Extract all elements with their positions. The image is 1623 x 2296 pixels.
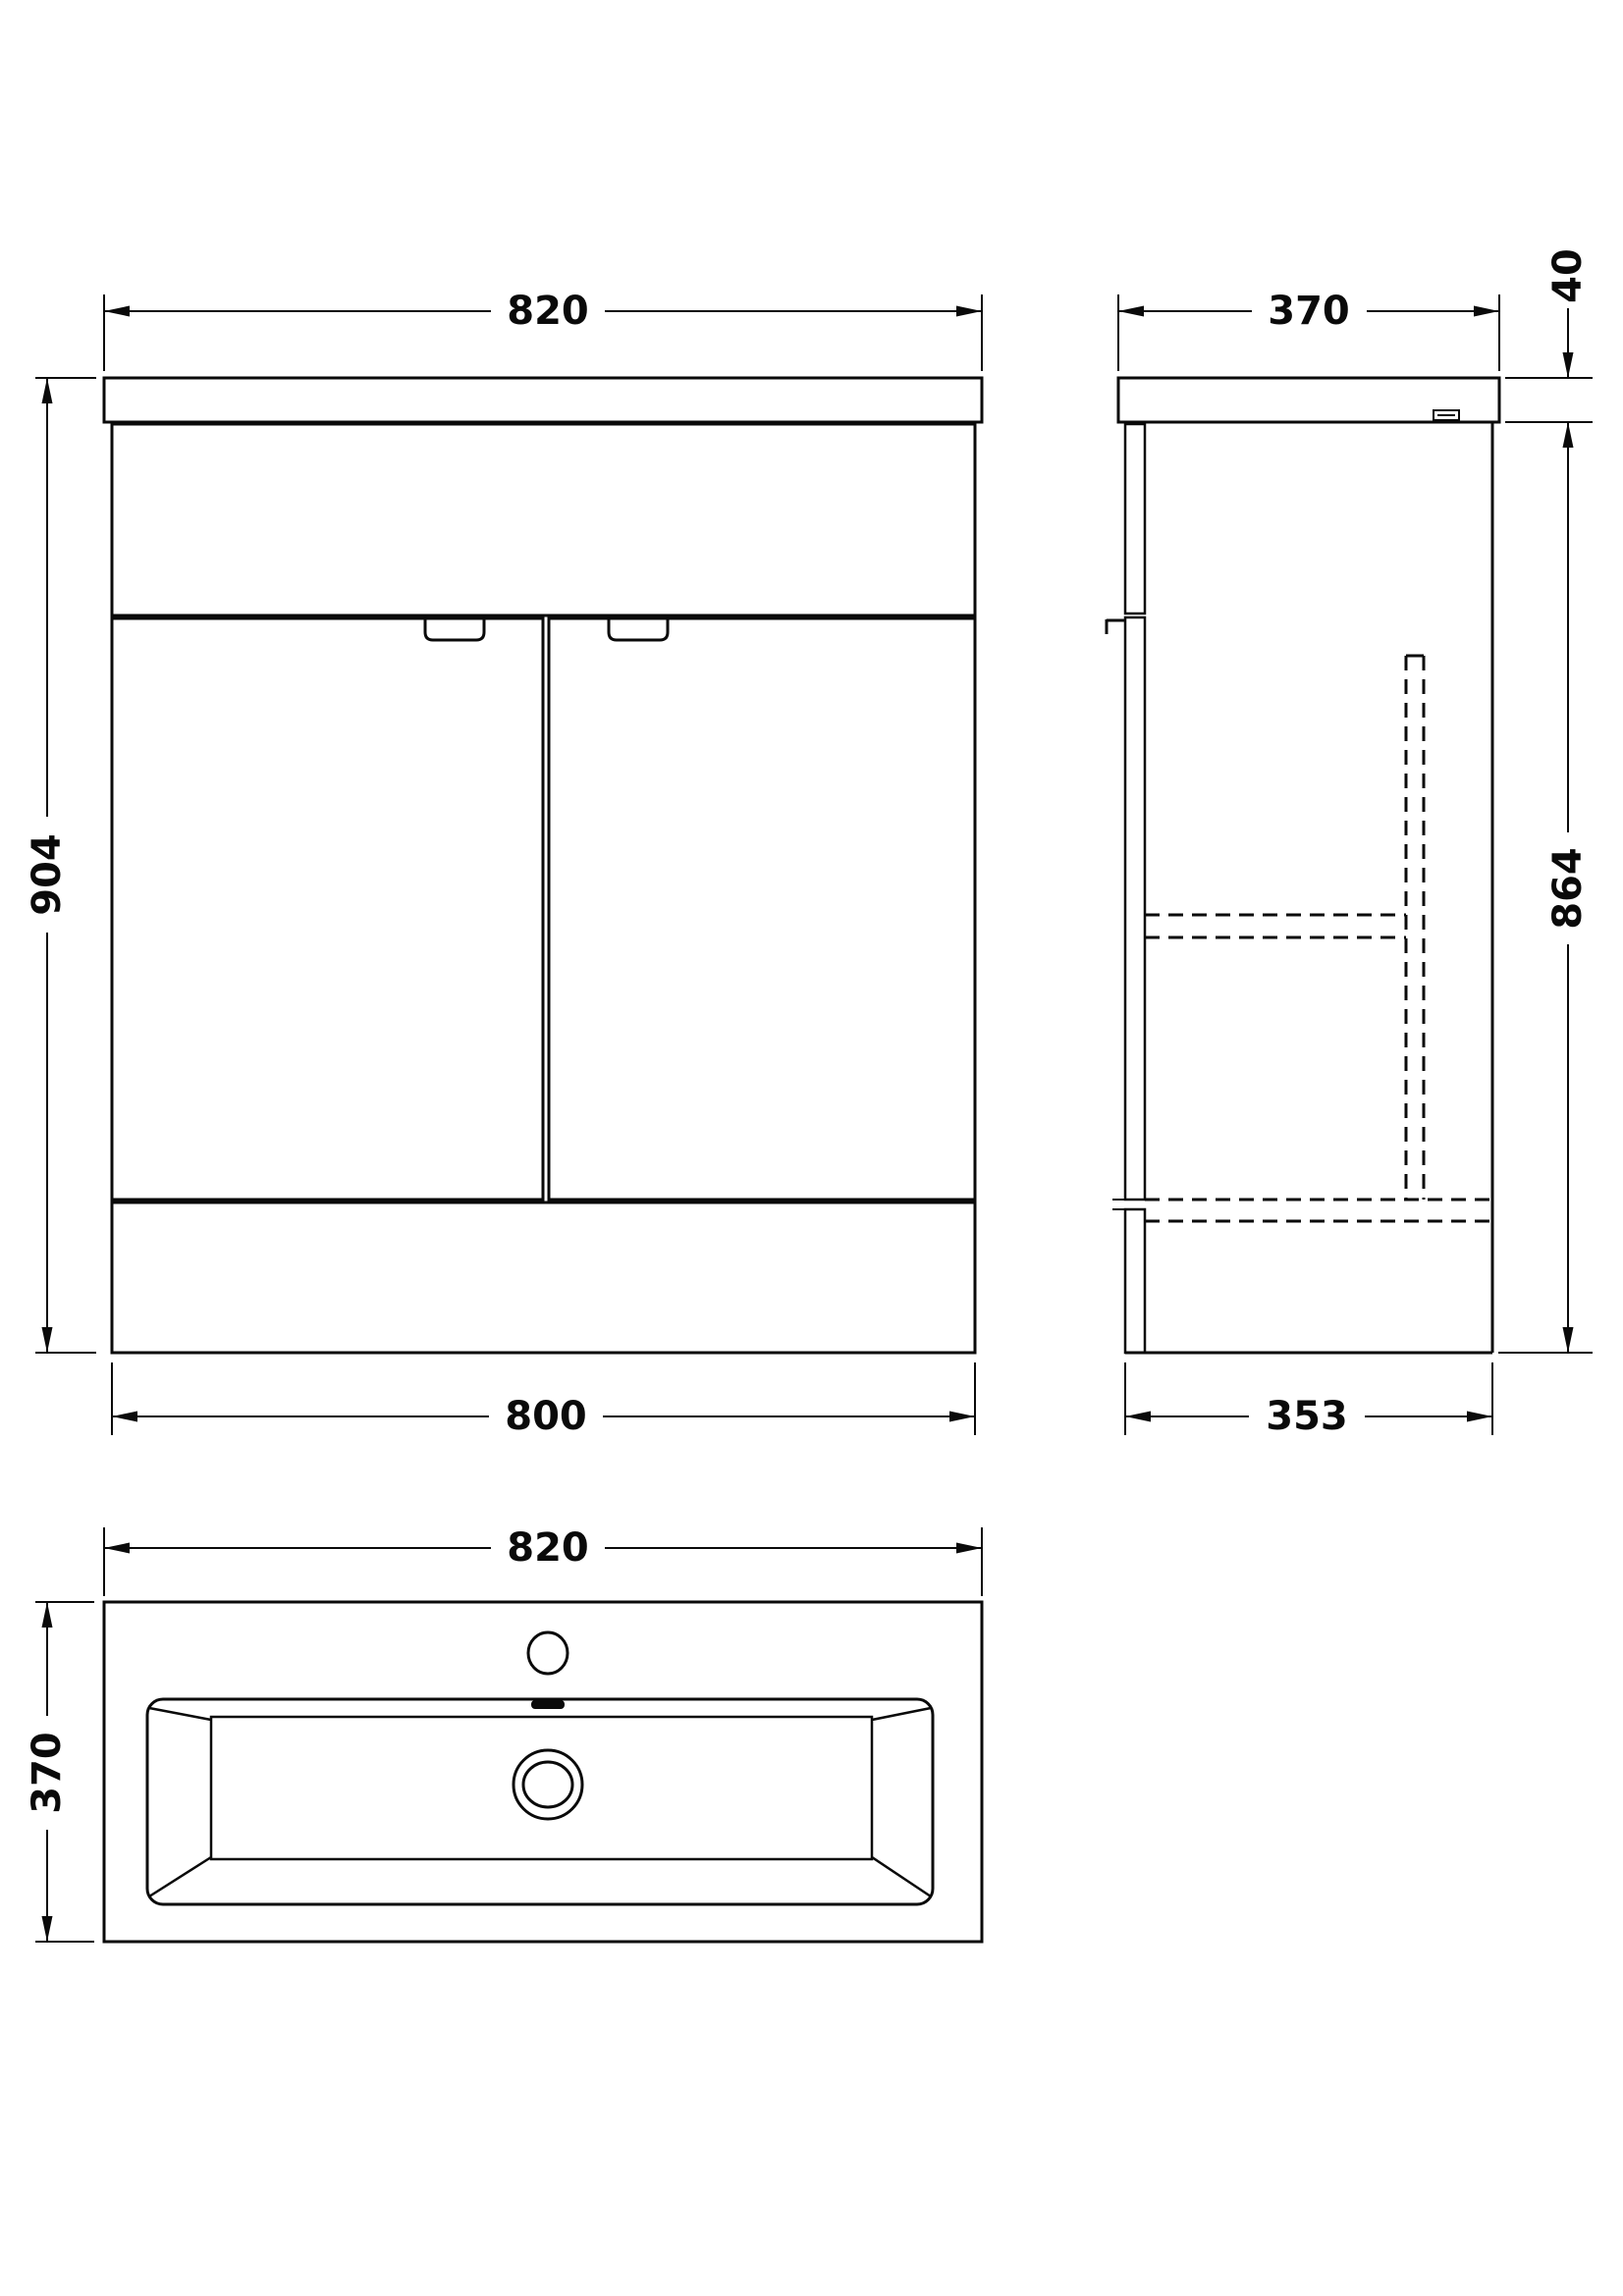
side-fixing-clip <box>1434 410 1459 420</box>
side-view: 370 40 864 353 <box>1107 248 1593 1439</box>
front-upper-panel <box>112 424 975 615</box>
front-door-left <box>112 618 543 1200</box>
side-door-edge <box>1125 617 1145 1200</box>
plan-view: 820 370 <box>25 1525 982 1942</box>
technical-drawing-sheet: 820 904 800 <box>0 0 1623 2296</box>
front-dim-width-top: 820 <box>104 289 982 371</box>
side-hidden-bottom-panel <box>1145 1200 1492 1221</box>
front-dim-width-top-label: 820 <box>507 289 589 334</box>
plan-dim-depth-label: 370 <box>25 1732 70 1814</box>
vanity-unit-dimension-drawing: 820 904 800 <box>0 0 1623 2296</box>
plan-basin-corner-slopes <box>149 1708 931 1896</box>
front-view: 820 904 800 <box>25 289 982 1439</box>
front-dim-width-bottom-label: 800 <box>505 1394 587 1439</box>
side-dim-depth-bottom: 353 <box>1125 1362 1492 1439</box>
front-dim-height-label: 904 <box>25 833 70 916</box>
side-hidden-shelf <box>1145 915 1406 937</box>
plan-worktop-outline <box>104 1602 982 1942</box>
side-dim-depth-top-label: 370 <box>1268 289 1350 334</box>
side-dim-cabinet-height-label: 864 <box>1545 847 1591 930</box>
side-dim-worktop-thickness-label: 40 <box>1545 248 1591 303</box>
plan-dim-width: 820 <box>104 1525 982 1596</box>
front-dim-width-bottom: 800 <box>112 1362 975 1439</box>
plan-dim-depth: 370 <box>25 1602 94 1942</box>
side-handle-profile <box>1107 619 1125 634</box>
front-dim-height: 904 <box>25 378 96 1353</box>
front-plinth <box>112 1202 975 1353</box>
plan-basin-rim <box>147 1699 933 1904</box>
side-plinth-edge <box>1125 1209 1145 1353</box>
plan-basin-floor <box>211 1717 872 1859</box>
plan-tap-hole <box>528 1632 568 1674</box>
side-dim-depth-top: 370 <box>1118 289 1499 371</box>
side-dim-depth-bottom-label: 353 <box>1266 1394 1348 1439</box>
side-upper-panel-edge <box>1125 424 1145 614</box>
side-hidden-back-panel <box>1406 656 1424 1200</box>
front-handle-left <box>425 619 484 640</box>
side-dim-worktop-thickness: 40 <box>1505 248 1593 422</box>
side-dim-cabinet-height: 864 <box>1498 422 1593 1353</box>
plan-overflow-slot <box>531 1700 565 1709</box>
plan-dim-width-label: 820 <box>507 1525 589 1571</box>
front-handle-right <box>609 619 668 640</box>
front-worktop <box>104 378 982 422</box>
plan-waste-drain <box>514 1750 582 1819</box>
front-door-right <box>549 618 975 1200</box>
